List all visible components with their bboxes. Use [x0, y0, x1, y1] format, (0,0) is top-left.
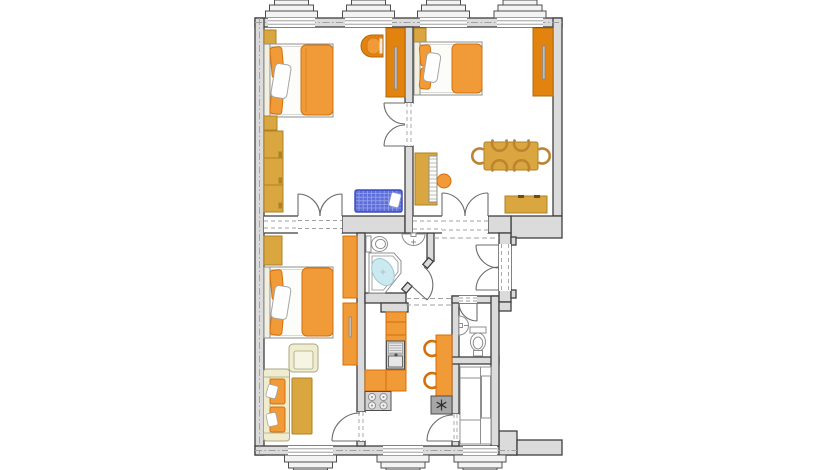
wall-bathroom-bottom: [365, 293, 406, 303]
wardrobe: [264, 236, 282, 265]
handle: [349, 317, 352, 337]
wall-cabinet-lower: [343, 303, 357, 365]
wall-wc-left-stub: [452, 441, 459, 446]
double-bed: [264, 44, 333, 117]
wall-mid-band-b: [488, 216, 511, 233]
floor-plan-page: [0, 0, 815, 470]
wall-living-kitchen-upper: [357, 233, 365, 412]
tv-wardrobe: [386, 28, 405, 97]
blanket: [452, 44, 482, 93]
handle: [543, 46, 546, 79]
wall-bedroom-divider-lower: [405, 146, 413, 233]
piano: [415, 153, 437, 205]
double-bed: [414, 42, 482, 95]
armchair: [289, 344, 318, 372]
kitchen-table: [436, 335, 452, 397]
armchair: [361, 35, 383, 57]
wall-kitchen-top-stub: [381, 303, 408, 312]
wall-hall-jog: [499, 302, 511, 311]
pantry-shelving: [460, 367, 491, 444]
piano-stool: [437, 174, 451, 188]
stove: [365, 392, 391, 411]
wall-cabinet-upper: [343, 236, 357, 298]
handle: [395, 47, 398, 89]
baby-cot: [355, 190, 402, 212]
wall-block-top-right: [511, 216, 562, 238]
white-pillow: [266, 412, 278, 427]
headboard: [264, 267, 270, 338]
wall-bathroom-right: [427, 233, 434, 261]
sofa: [264, 369, 290, 441]
sideboard: [505, 195, 547, 213]
kitchen-sink: [387, 341, 405, 369]
wall-pantry-right: [491, 296, 499, 446]
wall-right-dining: [553, 18, 562, 216]
toilet: [366, 236, 388, 252]
window-sills-bottom: [285, 455, 507, 470]
headboard: [264, 44, 270, 117]
floor-plan: [0, 0, 815, 470]
wall-entry-step-top: [511, 237, 516, 245]
freezer: [431, 396, 452, 414]
nightstand: [414, 28, 426, 43]
double-bed: [264, 267, 333, 338]
wall-bottom-right: [517, 440, 562, 455]
dresser: [264, 131, 283, 212]
wall-cabinet: [264, 116, 277, 130]
wardrobe: [533, 28, 553, 96]
coffee-table: [292, 378, 312, 434]
wall-bottom-right-jog: [499, 431, 517, 455]
wall-wc-left-upper: [452, 296, 459, 414]
wall-living-kitchen-stub: [357, 441, 365, 446]
blanket: [302, 268, 333, 336]
wall-mid-band-a: [342, 216, 405, 233]
window-glass-bottom: [288, 446, 497, 455]
wall-bedroom-divider-upper: [405, 27, 413, 103]
wall-entry-step-bottom: [511, 290, 516, 298]
